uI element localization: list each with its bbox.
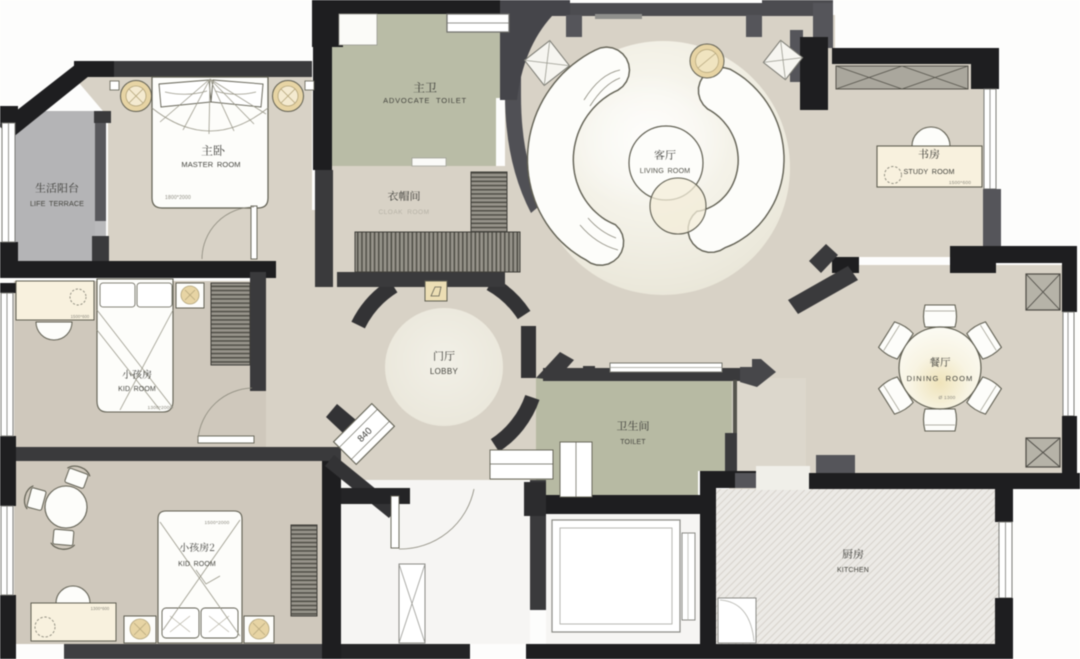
svg-text:DINING ROOM: DINING ROOM <box>907 374 974 383</box>
svg-text:STUDY ROOM: STUDY ROOM <box>903 167 954 176</box>
svg-text:TOILET: TOILET <box>620 439 646 446</box>
svg-text:1300*2000: 1300*2000 <box>147 405 172 411</box>
svg-text:1500*600: 1500*600 <box>949 180 971 186</box>
svg-text:KITCHEN: KITCHEN <box>837 567 869 574</box>
svg-text:Ø 1300: Ø 1300 <box>939 395 956 401</box>
svg-text:LIVING ROOM: LIVING ROOM <box>640 166 691 175</box>
svg-text:LIFE TERRACE: LIFE TERRACE <box>30 199 84 208</box>
svg-text:1500*600: 1500*600 <box>71 314 90 319</box>
svg-text:CLOAK ROOM: CLOAK ROOM <box>378 209 429 216</box>
svg-text:1800*2000: 1800*2000 <box>165 195 191 201</box>
svg-text:1500*2000: 1500*2000 <box>204 520 229 526</box>
svg-text:KID ROOM: KID ROOM <box>178 561 216 568</box>
svg-text:KID ROOM: KID ROOM <box>118 386 156 393</box>
svg-text:MASTER ROOM: MASTER ROOM <box>181 160 240 169</box>
svg-text:1300*600: 1300*600 <box>91 606 110 611</box>
svg-text:LOBBY: LOBBY <box>430 367 459 376</box>
svg-text:ADVOCATE TOILET: ADVOCATE TOILET <box>383 96 467 105</box>
